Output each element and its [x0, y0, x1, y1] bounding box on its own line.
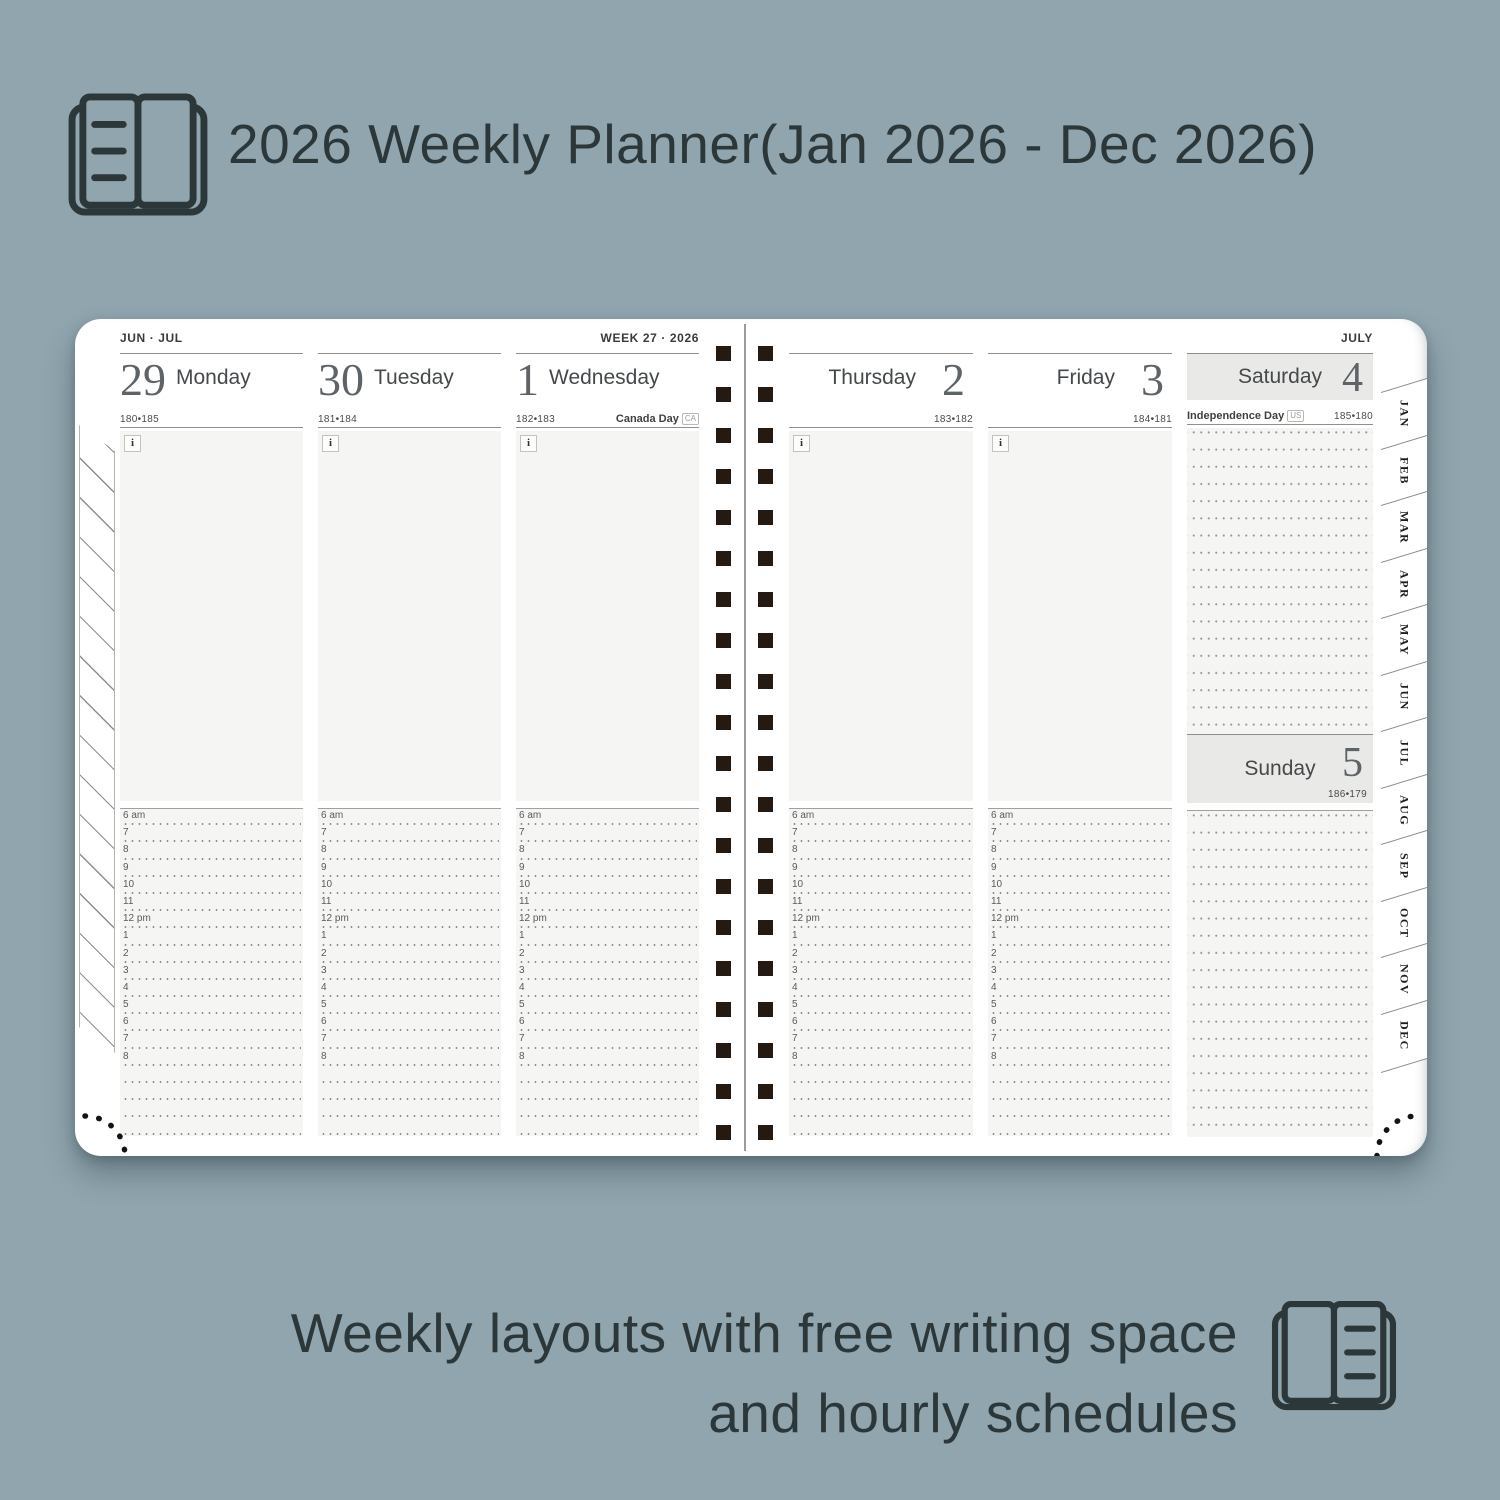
day-name: Friday [1057, 366, 1115, 390]
day-header: 30 Tuesday [318, 353, 501, 408]
open-book-icon [64, 92, 212, 218]
hour-row: 2 [318, 947, 501, 964]
hour-row: 3 [988, 964, 1172, 981]
footer-line-2: and hourly schedules [291, 1373, 1238, 1453]
hour-row-blank [516, 1084, 699, 1101]
hour-row: 7 [120, 826, 303, 843]
hour-row: 6 [318, 1015, 501, 1032]
hour-row: 12 pm [789, 912, 973, 929]
info-icon: i [322, 435, 339, 452]
hour-label: 8 [988, 843, 1172, 856]
day-of-year-count: 181•184 [318, 414, 357, 425]
product-image: 2026 Weekly Planner(Jan 2026 - Dec 2026)… [0, 0, 1500, 1500]
hour-label: 6 am [988, 809, 1172, 822]
hour-row: 8 [988, 843, 1172, 860]
writing-area: i [789, 431, 973, 801]
hour-row: 5 [988, 998, 1172, 1015]
day-subrow: 184•181 [988, 408, 1172, 428]
day-number: 1 [516, 357, 539, 403]
hour-label: 9 [516, 861, 699, 874]
hour-label: 2 [988, 947, 1172, 960]
hour-label: 11 [120, 895, 303, 908]
hour-row: 10 [988, 878, 1172, 895]
hour-row: 11 [516, 895, 699, 912]
day-of-year-count: 180•185 [120, 414, 159, 425]
hour-label: 3 [516, 964, 699, 977]
hourly-schedule: 6 am789101112 pm12345678 [988, 808, 1172, 1136]
hour-row: 6 [789, 1015, 973, 1032]
hour-label: 3 [988, 964, 1172, 977]
hour-row: 4 [318, 981, 501, 998]
hour-row: 8 [318, 1050, 501, 1067]
hour-row: 11 [318, 895, 501, 912]
hour-row: 5 [318, 998, 501, 1015]
day-name: Saturday [1238, 365, 1322, 389]
day-name: Monday [176, 366, 251, 390]
hour-row-blank [318, 1067, 501, 1084]
page-edge-hatching [79, 425, 115, 1053]
hour-label: 6 [516, 1015, 699, 1028]
hour-row-blank [789, 1067, 973, 1084]
top-header: 2026 Weekly Planner(Jan 2026 - Dec 2026) [0, 0, 1500, 260]
day-header: Thursday 2 [789, 353, 973, 408]
saturday-header: Saturday 4 [1187, 353, 1373, 400]
hour-label: 8 [516, 1050, 699, 1063]
hour-label: 2 [318, 947, 501, 960]
hour-row: 8 [120, 843, 303, 860]
hour-row-blank [789, 1101, 973, 1118]
hour-row: 9 [789, 861, 973, 878]
hour-row-blank [988, 1084, 1172, 1101]
hour-row: 1 [318, 929, 501, 946]
hour-label: 12 pm [120, 912, 303, 925]
hour-label: 5 [516, 998, 699, 1011]
hour-label: 8 [789, 843, 973, 856]
hour-label: 5 [789, 998, 973, 1011]
hour-label: 5 [318, 998, 501, 1011]
hour-label: 11 [988, 895, 1172, 908]
hour-label: 8 [318, 1050, 501, 1063]
hour-row: 3 [318, 964, 501, 981]
hour-row: 12 pm [318, 912, 501, 929]
hour-row-blank [318, 1118, 501, 1135]
hour-label: 8 [120, 1050, 303, 1063]
hour-label: 6 [988, 1015, 1172, 1028]
day-number: 2 [942, 357, 965, 403]
hour-label: 12 pm [318, 912, 501, 925]
spiral-binding-holes [758, 346, 773, 1143]
hour-label: 6 [120, 1015, 303, 1028]
hour-row: 12 pm [988, 912, 1172, 929]
hour-row: 1 [988, 929, 1172, 946]
hour-label: 7 [318, 1032, 501, 1045]
hour-row-blank [516, 1101, 699, 1118]
hour-row: 5 [120, 998, 303, 1015]
hour-row: 8 [318, 843, 501, 860]
day-subrow: 181•184 [318, 408, 501, 428]
hour-label: 7 [789, 826, 973, 839]
hour-label: 6 [789, 1015, 973, 1028]
hour-row-blank [120, 1118, 303, 1135]
day-name: Sunday [1244, 757, 1315, 781]
spiral-binding-holes [716, 346, 731, 1143]
hour-row: 8 [516, 843, 699, 860]
hour-label: 3 [318, 964, 501, 977]
hour-row: 9 [318, 861, 501, 878]
hour-label: 11 [789, 895, 973, 908]
hour-label: 7 [516, 1032, 699, 1045]
hour-label: 5 [120, 998, 303, 1011]
hour-row: 11 [789, 895, 973, 912]
hour-row: 7 [516, 1032, 699, 1049]
hour-label: 12 pm [988, 912, 1172, 925]
hour-row: 10 [318, 878, 501, 895]
hour-row: 8 [120, 1050, 303, 1067]
hour-label: 10 [988, 878, 1172, 891]
hour-row: 9 [516, 861, 699, 878]
hour-label: 8 [988, 1050, 1172, 1063]
hour-row: 7 [789, 1032, 973, 1049]
day-number: 4 [1342, 354, 1363, 402]
day-column-monday: 29 Monday 180•185 i 6 am789101112 pm1234… [120, 353, 303, 1136]
hour-row-blank [318, 1084, 501, 1101]
day-number: 29 [120, 357, 166, 403]
writing-area: i [988, 431, 1172, 801]
footer-line-1: Weekly layouts with free writing space [291, 1293, 1238, 1373]
day-header: 1 Wednesday [516, 353, 699, 408]
hour-row: 3 [516, 964, 699, 981]
hour-label: 8 [120, 843, 303, 856]
hour-label: 10 [318, 878, 501, 891]
hour-label: 12 pm [516, 912, 699, 925]
hour-row: 1 [516, 929, 699, 946]
holiday-name: Canada Day [616, 413, 679, 425]
hour-label: 3 [120, 964, 303, 977]
hour-label: 7 [516, 826, 699, 839]
hour-label: 4 [318, 981, 501, 994]
hour-row: 9 [988, 861, 1172, 878]
hour-label: 1 [988, 929, 1172, 942]
hour-label: 4 [789, 981, 973, 994]
day-header: Friday 3 [988, 353, 1172, 408]
hour-row-blank [516, 1067, 699, 1084]
hour-row: 2 [516, 947, 699, 964]
hour-label: 4 [120, 981, 303, 994]
hour-row: 6 am [318, 809, 501, 826]
hour-row: 7 [318, 826, 501, 843]
open-book-icon [1268, 1296, 1400, 1416]
hour-row: 2 [120, 947, 303, 964]
hour-row-blank [988, 1118, 1172, 1135]
hour-label: 5 [988, 998, 1172, 1011]
hour-label: 1 [120, 929, 303, 942]
holiday-name: Independence Day [1187, 410, 1284, 422]
day-name: Tuesday [374, 366, 454, 390]
day-subrow: Independence Day US 185•180 [1187, 400, 1373, 425]
month-label: JULY [1133, 331, 1373, 345]
hour-label: 2 [120, 947, 303, 960]
hour-label: 1 [516, 929, 699, 942]
hourly-schedule: 6 am789101112 pm12345678 [789, 808, 973, 1136]
day-column-wednesday: 1 Wednesday 182•183 Canada Day CA i 6 am… [516, 353, 699, 1136]
hour-row: 11 [120, 895, 303, 912]
hour-label: 1 [318, 929, 501, 942]
hour-row: 7 [318, 1032, 501, 1049]
hour-row: 6 am [789, 809, 973, 826]
hour-row: 9 [120, 861, 303, 878]
hour-label: 12 pm [789, 912, 973, 925]
hour-row: 4 [789, 981, 973, 998]
day-number: 5 [1342, 739, 1363, 787]
info-icon: i [992, 435, 1009, 452]
hour-row: 12 pm [516, 912, 699, 929]
hour-row-blank [988, 1101, 1172, 1118]
hour-label: 11 [318, 895, 501, 908]
holiday-label: Independence Day US [1187, 410, 1304, 422]
hour-row: 1 [120, 929, 303, 946]
hour-row: 7 [988, 826, 1172, 843]
hour-row-blank [789, 1084, 973, 1101]
product-title: 2026 Weekly Planner(Jan 2026 - Dec 2026) [228, 112, 1317, 176]
hourly-schedule: 6 am789101112 pm12345678 [318, 808, 501, 1136]
hour-row: 12 pm [120, 912, 303, 929]
hour-label: 8 [318, 843, 501, 856]
week-number-label: WEEK 27 · 2026 [459, 331, 699, 345]
hour-label: 9 [120, 861, 303, 874]
hour-row: 8 [988, 1050, 1172, 1067]
day-name: Wednesday [549, 366, 660, 390]
hour-label: 4 [516, 981, 699, 994]
hour-row: 6 [120, 1015, 303, 1032]
month-range-label: JUN · JUL [120, 331, 183, 345]
hour-row: 6 am [120, 809, 303, 826]
day-of-year-count: 186•179 [1328, 789, 1367, 800]
day-subrow: 182•183 Canada Day CA [516, 408, 699, 428]
hour-label: 10 [120, 878, 303, 891]
info-icon: i [124, 435, 141, 452]
day-name: Thursday [828, 366, 916, 390]
sunday-notes-area [1187, 810, 1373, 1137]
hour-row: 4 [120, 981, 303, 998]
hour-row: 10 [516, 878, 699, 895]
hour-row: 10 [789, 878, 973, 895]
hour-row: 8 [789, 843, 973, 860]
hour-row: 7 [789, 826, 973, 843]
hour-label: 6 am [516, 809, 699, 822]
hour-row: 6 [516, 1015, 699, 1032]
hour-label: 7 [120, 826, 303, 839]
country-badge: US [1287, 410, 1304, 422]
holiday-label: Canada Day CA [616, 413, 699, 425]
hour-row: 6 am [516, 809, 699, 826]
day-column-weekend: Saturday 4 Independence Day US 185•180 S… [1187, 353, 1373, 1137]
hour-row: 7 [120, 1032, 303, 1049]
hour-label: 3 [789, 964, 973, 977]
day-of-year-count: 185•180 [1334, 411, 1373, 422]
hour-label: 7 [988, 826, 1172, 839]
hour-label: 6 [318, 1015, 501, 1028]
sunday-header: Sunday 5 186•179 [1187, 734, 1373, 803]
day-number: 30 [318, 357, 364, 403]
month-tab-dec: DEC [1381, 999, 1427, 1072]
hour-row: 4 [988, 981, 1172, 998]
day-number: 3 [1141, 357, 1164, 403]
hour-label: 9 [988, 861, 1172, 874]
hour-label: 11 [516, 895, 699, 908]
hourly-schedule: 6 am789101112 pm12345678 [120, 808, 303, 1136]
hour-label: 7 [988, 1032, 1172, 1045]
day-column-friday: Friday 3 184•181 i 6 am789101112 pm12345… [988, 353, 1172, 1136]
hour-row: 2 [988, 947, 1172, 964]
hour-label: 10 [789, 878, 973, 891]
hour-label: 9 [789, 861, 973, 874]
hourly-schedule: 6 am789101112 pm12345678 [516, 808, 699, 1136]
country-badge: CA [682, 413, 699, 425]
day-of-year-count: 184•181 [1133, 414, 1172, 425]
day-of-year-count: 183•182 [934, 414, 973, 425]
writing-area: i [120, 431, 303, 801]
hour-row: 6 [988, 1015, 1172, 1032]
hour-row: 4 [516, 981, 699, 998]
hour-label: 6 am [120, 809, 303, 822]
footer-caption: Weekly layouts with free writing space a… [291, 1293, 1238, 1453]
hour-row: 3 [789, 964, 973, 981]
hour-row-blank [120, 1067, 303, 1084]
day-subrow: 180•185 [120, 408, 303, 428]
saturday-notes-area [1187, 428, 1373, 734]
hour-row: 11 [988, 895, 1172, 912]
planner-spread: JUN · JUL WEEK 27 · 2026 JULY 29 Monday … [75, 319, 1427, 1156]
hour-label: 6 am [789, 809, 973, 822]
hour-row-blank [120, 1101, 303, 1118]
hour-label: 1 [789, 929, 973, 942]
hour-row: 3 [120, 964, 303, 981]
hour-row-blank [988, 1067, 1172, 1084]
hour-row: 6 am [988, 809, 1172, 826]
hour-row-blank [516, 1118, 699, 1135]
hour-label: 7 [318, 826, 501, 839]
hour-label: 2 [516, 947, 699, 960]
day-header: 29 Monday [120, 353, 303, 408]
hour-row: 2 [789, 947, 973, 964]
hour-row: 1 [789, 929, 973, 946]
hour-label: 7 [120, 1032, 303, 1045]
page-gap-line [744, 324, 746, 1151]
hour-row: 8 [516, 1050, 699, 1067]
hour-label: 7 [789, 1032, 973, 1045]
hour-label: 6 am [318, 809, 501, 822]
day-column-tuesday: 30 Tuesday 181•184 i 6 am789101112 pm123… [318, 353, 501, 1136]
hour-row: 10 [120, 878, 303, 895]
hour-row: 7 [988, 1032, 1172, 1049]
writing-area: i [516, 431, 699, 801]
hour-row-blank [120, 1084, 303, 1101]
hour-row: 7 [516, 826, 699, 843]
hour-row: 8 [789, 1050, 973, 1067]
hour-label: 8 [789, 1050, 973, 1063]
hour-label: 4 [988, 981, 1172, 994]
info-icon: i [520, 435, 537, 452]
writing-area: i [318, 431, 501, 801]
hour-row: 5 [516, 998, 699, 1015]
info-icon: i [793, 435, 810, 452]
day-column-thursday: Thursday 2 183•182 i 6 am789101112 pm123… [789, 353, 973, 1136]
hour-label: 10 [516, 878, 699, 891]
hour-label: 8 [516, 843, 699, 856]
hour-label: 2 [789, 947, 973, 960]
hour-row-blank [789, 1118, 973, 1135]
hour-label: 9 [318, 861, 501, 874]
hour-row: 5 [789, 998, 973, 1015]
day-subrow: 183•182 [789, 408, 973, 428]
hour-row-blank [318, 1101, 501, 1118]
day-of-year-count: 182•183 [516, 414, 555, 425]
